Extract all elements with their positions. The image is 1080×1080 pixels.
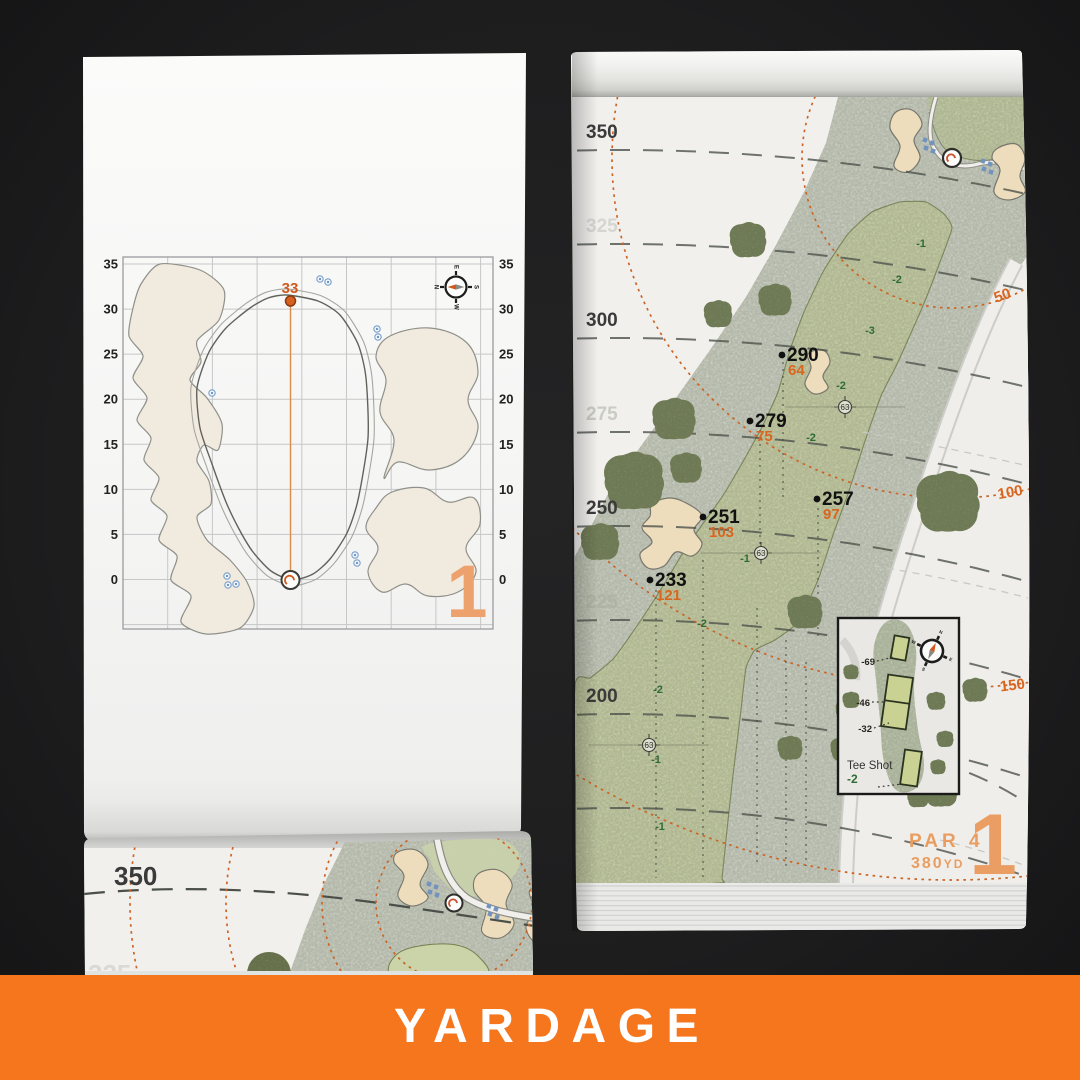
svg-text:30: 30 [104,302,118,317]
svg-text:10: 10 [104,482,118,497]
svg-text:150: 150 [999,676,1026,696]
svg-text:-1: -1 [651,754,661,766]
svg-text:-2: -2 [806,432,816,444]
svg-text:YARDAGE: YARDAGE [394,1000,710,1053]
svg-text:-69: -69 [861,657,875,668]
svg-text:20: 20 [104,392,118,407]
svg-text:E: E [452,265,458,269]
svg-text:S: S [472,285,478,289]
svg-text:-2: -2 [892,274,902,286]
svg-text:Tee Shot: Tee Shot [847,760,893,772]
svg-text:N: N [432,285,438,289]
svg-text:25: 25 [104,347,118,362]
svg-text:103: 103 [709,524,734,541]
svg-text:75: 75 [756,428,773,445]
svg-text:380YD: 380YD [911,855,964,872]
svg-text:20: 20 [499,392,513,407]
svg-text:15: 15 [499,437,513,452]
svg-text:-32: -32 [858,724,872,735]
svg-text:97: 97 [823,506,840,523]
svg-text:-2: -2 [847,772,858,786]
svg-text:-2: -2 [653,684,663,696]
svg-text:35: 35 [499,257,513,272]
svg-text:-2: -2 [697,618,707,630]
svg-text:350: 350 [114,861,157,891]
svg-text:35: 35 [104,257,118,272]
svg-text:5: 5 [499,527,506,542]
svg-text:33: 33 [282,280,299,297]
svg-text:-1: -1 [740,553,750,565]
svg-text:10: 10 [499,482,513,497]
svg-text:121: 121 [656,587,681,604]
svg-text:-46: -46 [856,698,870,709]
svg-text:W: W [452,304,458,310]
svg-text:1: 1 [969,797,1017,893]
svg-text:-3: -3 [865,325,875,337]
svg-text:5: 5 [111,527,118,542]
svg-text:-1: -1 [655,821,665,833]
svg-text:15: 15 [104,437,118,452]
svg-text:1: 1 [446,550,487,633]
svg-text:0: 0 [499,572,506,587]
svg-text:-1: -1 [916,238,926,250]
svg-text:30: 30 [499,302,513,317]
svg-text:64: 64 [788,362,805,379]
svg-text:0: 0 [111,572,118,587]
svg-text:25: 25 [499,347,513,362]
svg-text:-2: -2 [836,380,846,392]
